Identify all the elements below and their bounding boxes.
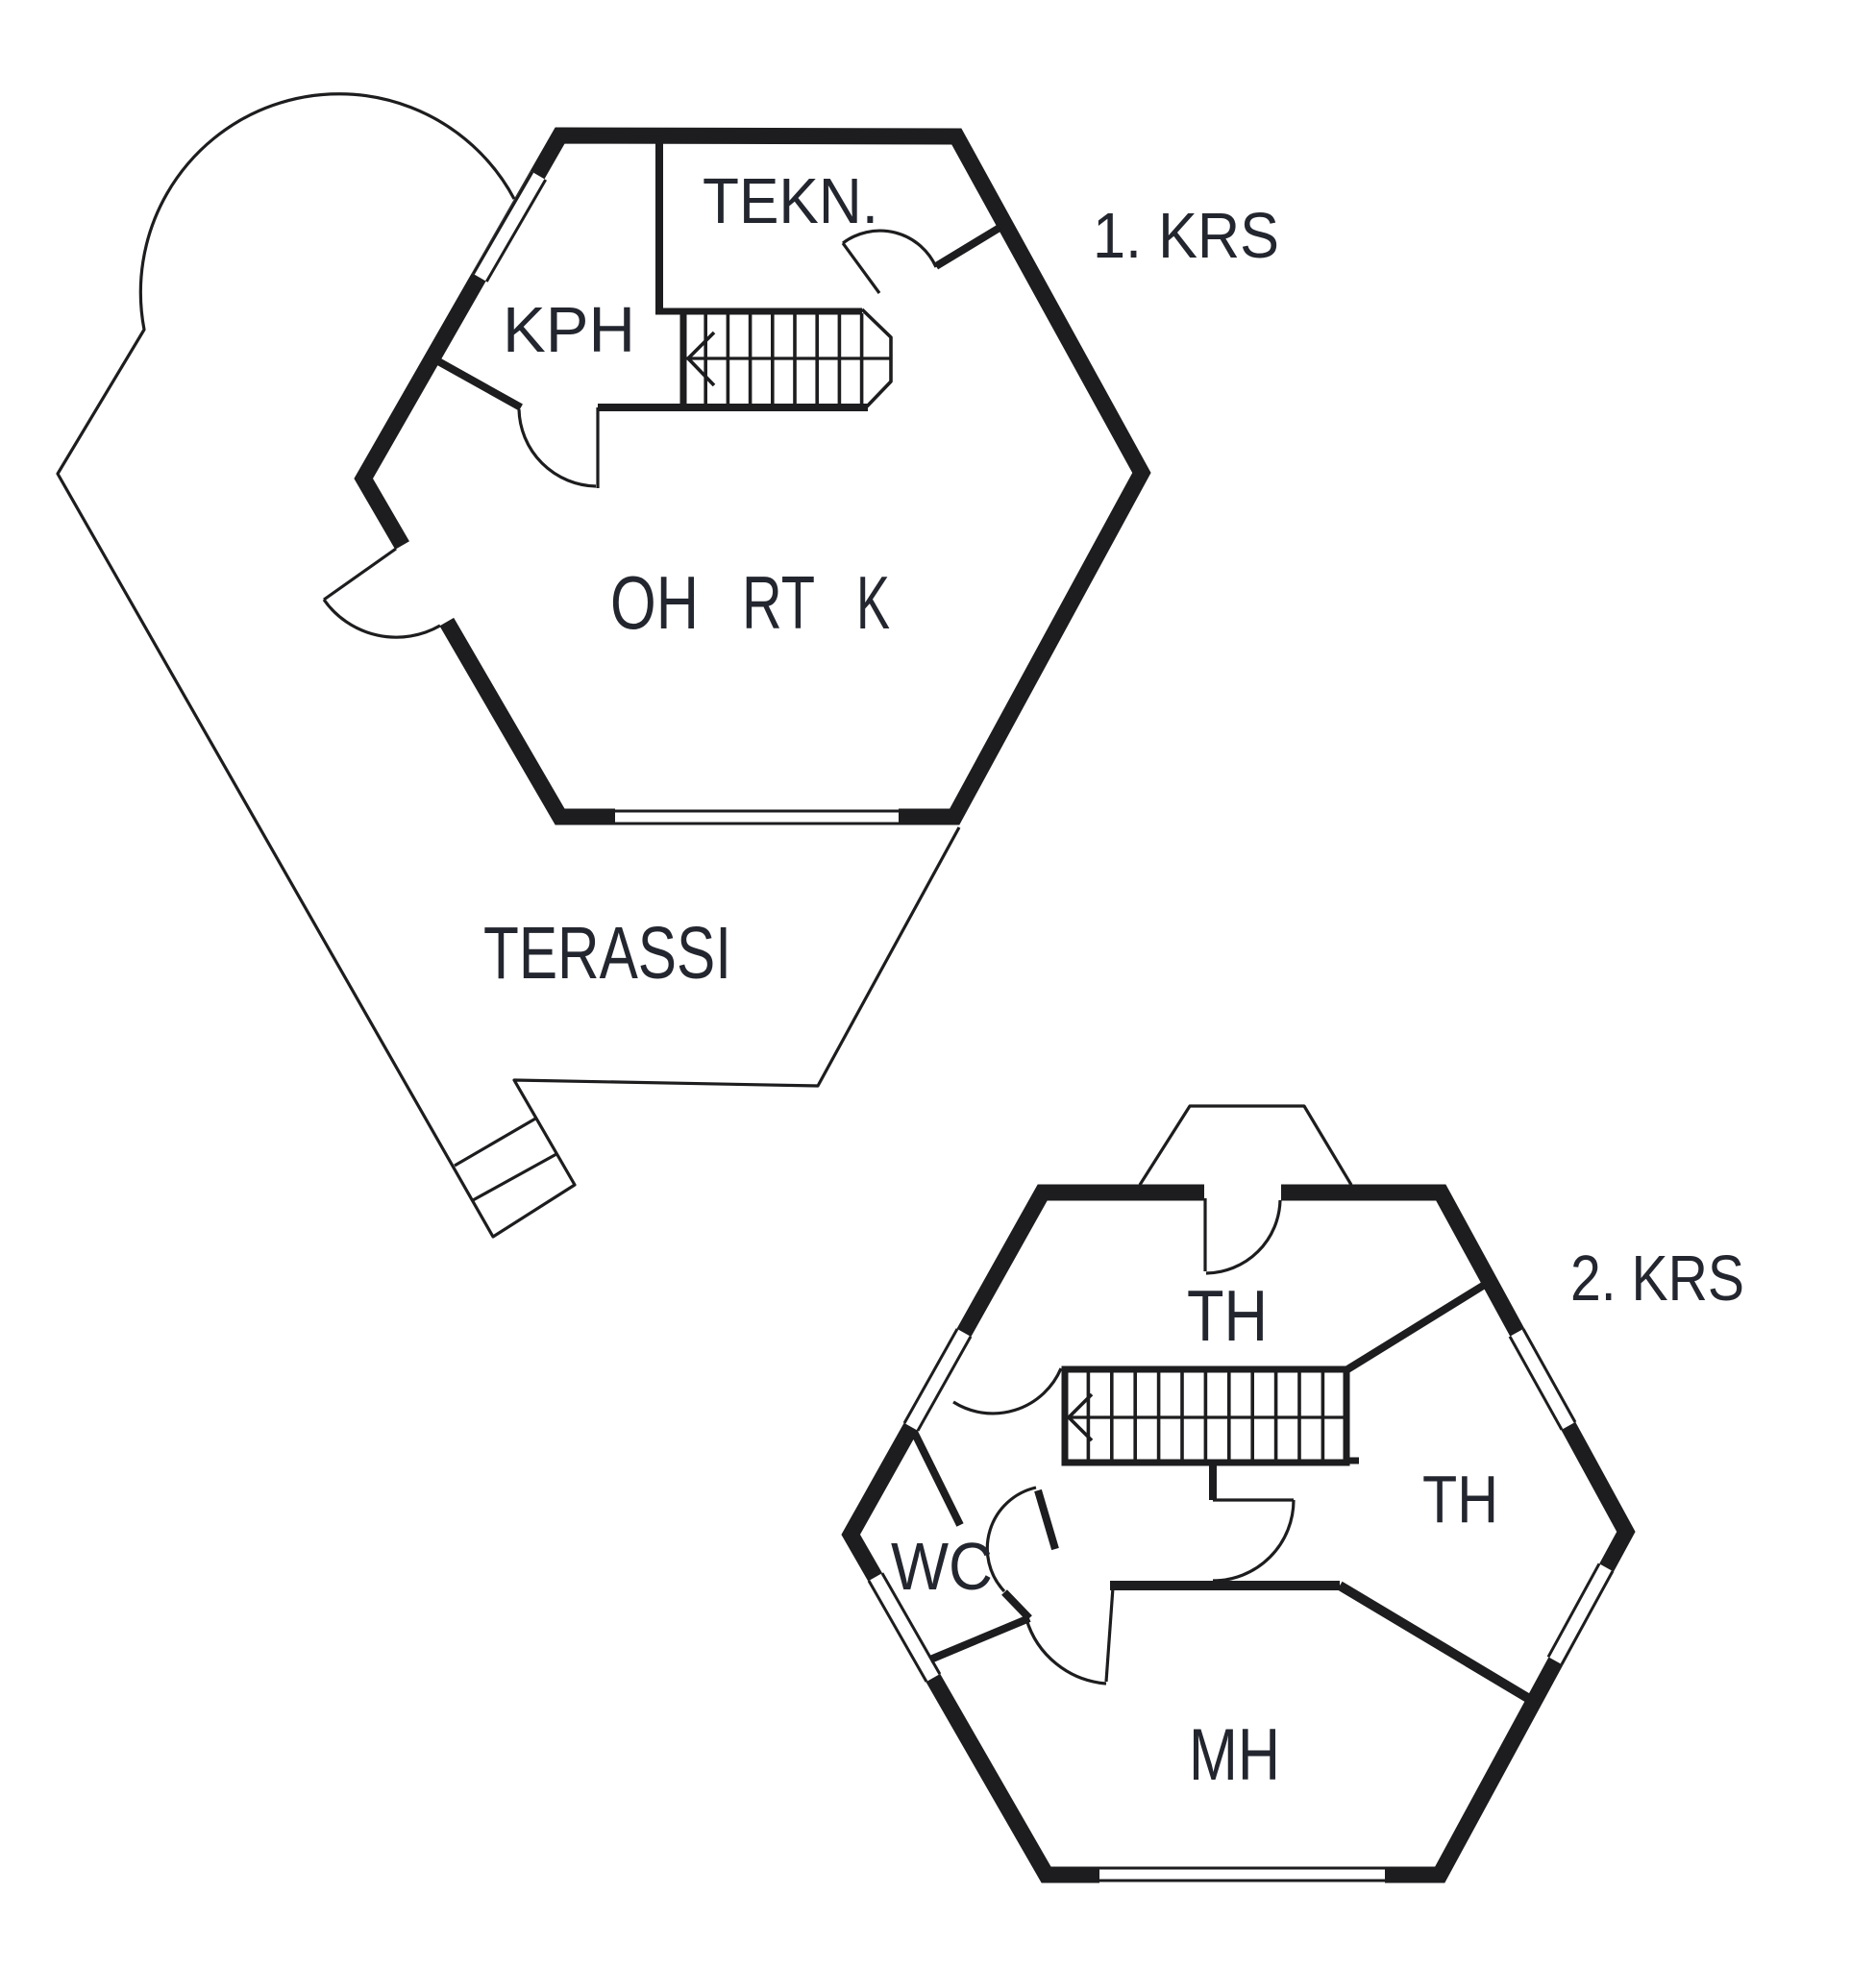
svg-text:TEKN.: TEKN.	[703, 165, 878, 237]
svg-text:RT: RT	[742, 560, 815, 645]
svg-text:WC: WC	[891, 1529, 993, 1604]
svg-text:1. KRS: 1. KRS	[1093, 200, 1279, 272]
svg-text:TERASSI: TERASSI	[483, 912, 731, 995]
svg-text:TH: TH	[1422, 1462, 1498, 1537]
svg-text:2. KRS: 2. KRS	[1570, 1242, 1744, 1315]
svg-text:KPH: KPH	[503, 294, 635, 366]
svg-text:MH: MH	[1189, 1714, 1280, 1796]
svg-text:OH: OH	[610, 560, 699, 645]
svg-text:K: K	[856, 560, 890, 645]
svg-text:TH: TH	[1187, 1275, 1268, 1356]
